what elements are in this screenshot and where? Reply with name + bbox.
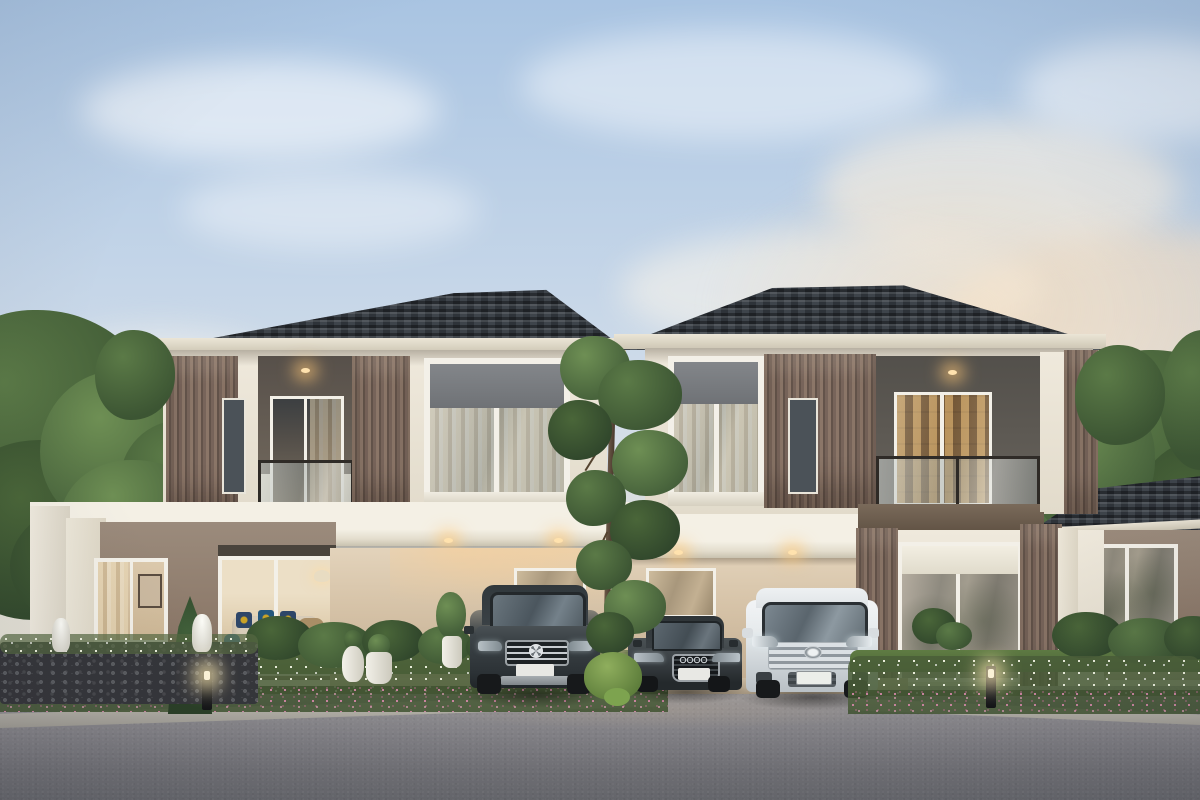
planter-jar (342, 646, 364, 682)
railing-post (876, 456, 879, 506)
audi-rings-emblem (679, 656, 709, 664)
right-slat-panel (764, 354, 876, 508)
right-pier (1040, 352, 1064, 512)
left-slit-window (222, 398, 246, 494)
tree-base-bush-small (604, 688, 630, 706)
sedan-headlight (634, 653, 664, 662)
canopy-downlight (788, 550, 797, 555)
architectural-render-scene (0, 0, 1200, 800)
left-balcony-downlight (301, 368, 310, 373)
left-window-glass (430, 408, 564, 492)
suv-skidplate (500, 676, 570, 685)
canopy-downlight (674, 550, 683, 555)
right-roof-fascia (614, 334, 1106, 349)
right-window-mullion (714, 404, 719, 492)
right-slit-window (788, 398, 818, 494)
fountain-ornament (52, 618, 70, 652)
sedan-mirror (633, 640, 642, 647)
roller-shade-band (902, 546, 1018, 574)
left-wing-window-curtain (98, 562, 128, 640)
right-window-unit (668, 356, 764, 506)
cloud (80, 60, 440, 160)
van-mirror (742, 628, 753, 638)
right-window-sill (668, 492, 764, 506)
topiary-pot (366, 652, 392, 684)
suv-wheel (477, 674, 501, 694)
bollard-light (986, 666, 996, 708)
van-headlight (752, 636, 778, 647)
wall-top-blossoms (0, 634, 258, 654)
van-headlight (846, 636, 872, 647)
suv-mirror (464, 626, 474, 634)
sofa-pillow (236, 612, 252, 628)
mercedes-star-emblem (529, 644, 543, 658)
left-wing-window (94, 558, 168, 644)
right-window-spandrel (674, 362, 758, 404)
sedan-mirror (729, 640, 738, 647)
left-window-spandrel (430, 364, 564, 408)
van-wheel (756, 680, 780, 698)
pendant-lamp (314, 570, 330, 582)
license-plate (796, 671, 832, 685)
left-slat-panel-b (352, 356, 410, 512)
right-balcony-downlight (948, 370, 957, 375)
cloud (520, 30, 940, 140)
toyota-emblem (804, 646, 822, 659)
right-canopy-shadow (626, 558, 862, 566)
canopy-downlight (554, 538, 563, 543)
sedan-windshield (652, 621, 722, 651)
fountain-ornament (192, 614, 212, 652)
sedan-wheel (708, 676, 730, 692)
right-flowerbed-pink (848, 690, 1200, 714)
wall-art (138, 574, 162, 608)
left-wing-window-mullion (130, 562, 133, 640)
sedan-headlight (712, 653, 740, 662)
right-window-glass (674, 404, 758, 492)
suv-headlight (478, 641, 502, 651)
corner-plant-pot (442, 636, 462, 668)
left-window-mullion (494, 408, 499, 492)
bollard-light (202, 668, 212, 710)
cloud (180, 170, 480, 250)
license-plate (678, 668, 710, 680)
canopy-downlight (444, 538, 453, 543)
railing-post (956, 456, 959, 506)
